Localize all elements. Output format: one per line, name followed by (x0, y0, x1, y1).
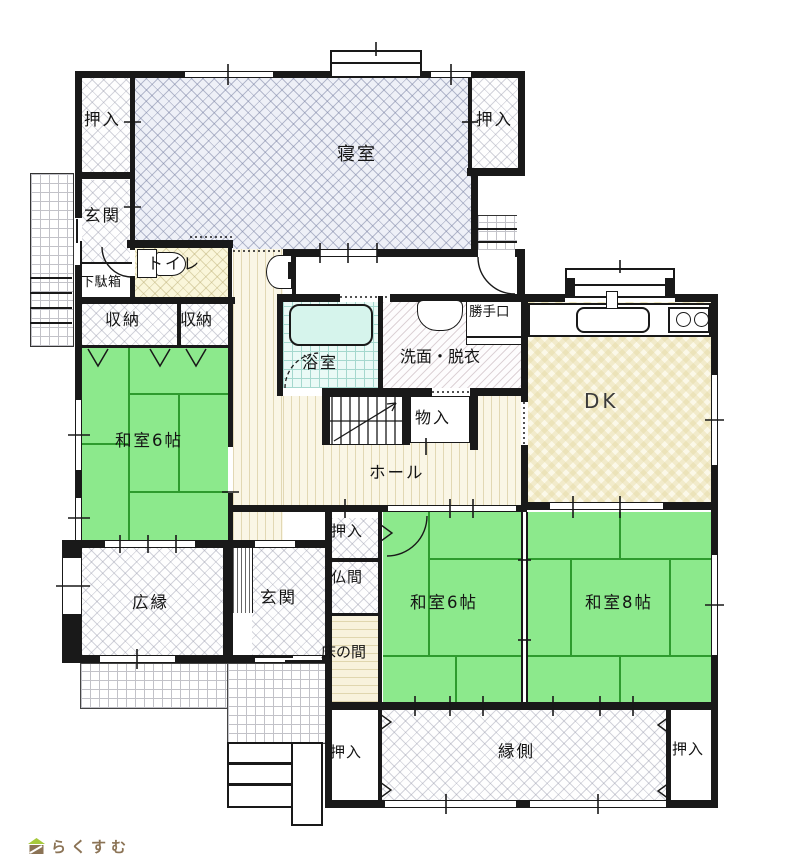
bay-window-side (565, 278, 575, 298)
label-tokonoma: 床の間 (321, 644, 366, 661)
wall (523, 502, 550, 510)
rakusumu-logo: らくすむ (28, 836, 131, 857)
window (75, 498, 82, 540)
porch-step-line (30, 292, 72, 294)
wall (228, 300, 233, 447)
porch-south-right (227, 663, 327, 744)
washbasin-column (288, 262, 296, 279)
partition-line (468, 78, 472, 168)
wall (325, 800, 385, 808)
shoji-door (105, 540, 195, 548)
label-washitsu6-west: 和室6帖 (115, 432, 183, 450)
entrance-step-3 (227, 784, 293, 808)
wall (273, 71, 330, 78)
tatami-line (619, 657, 621, 703)
wall (127, 240, 233, 248)
wall (228, 505, 388, 512)
tatami-line (428, 512, 430, 657)
window (711, 555, 718, 655)
porch-west (30, 173, 74, 347)
tatami-line (383, 655, 523, 657)
wall (521, 445, 528, 510)
wall (422, 71, 431, 78)
entrance-sliding-door (255, 656, 322, 662)
logo-text: らくすむ (51, 836, 131, 857)
wall (322, 388, 383, 396)
porch-step-line (30, 307, 72, 309)
label-katteguchi: 勝手口 (469, 305, 510, 320)
wall (223, 548, 233, 655)
porch-step-line (478, 241, 517, 243)
wall (471, 71, 525, 78)
wall (325, 512, 332, 710)
label-closet-nw: 押入 (84, 111, 121, 129)
label-closet-mid: 押入 (331, 523, 363, 540)
stove-burner-icon (676, 312, 691, 327)
label-bedroom: 寝室 (337, 145, 377, 165)
window (100, 655, 175, 663)
rear-passage-floor (283, 257, 517, 294)
wall (130, 78, 135, 245)
bay-window-dk (565, 268, 675, 298)
label-closet-ne: 押入 (476, 111, 513, 129)
label-dk: DK (584, 390, 619, 412)
wall (75, 304, 82, 400)
bay-window-line (332, 62, 420, 64)
wall (383, 388, 432, 396)
partition-line (332, 558, 378, 562)
wall (711, 295, 718, 375)
label-washroom: 洗面・脱衣 (400, 348, 480, 366)
wall (516, 505, 527, 512)
wall (377, 249, 478, 257)
sliding-door (550, 502, 663, 510)
window (185, 71, 273, 78)
label-engawa: 縁側 (498, 743, 535, 761)
entrance-sliding-door (75, 218, 82, 265)
window (75, 400, 82, 470)
bay-window-bedroom (330, 50, 422, 78)
label-entrance-south: 玄関 (260, 589, 297, 607)
wall (470, 388, 478, 450)
label-hiroen: 広縁 (132, 594, 169, 612)
label-shoe-cabinet: 下駄箱 (81, 276, 122, 290)
wall (518, 71, 525, 176)
wall (471, 168, 478, 257)
entrance-step-board (233, 548, 253, 613)
window (711, 375, 718, 465)
wall (663, 502, 718, 510)
partition-line (378, 512, 382, 702)
label-bathroom: 浴室 (302, 354, 338, 372)
sliding-door (432, 389, 472, 395)
stove-burner-icon (694, 312, 709, 327)
partition-line (332, 613, 378, 616)
label-storage2: 収納 (180, 311, 212, 329)
wall (130, 276, 135, 297)
bathtub-icon (289, 304, 373, 346)
fusuma-line (521, 512, 523, 705)
label-storage1: 収納 (105, 311, 141, 329)
tatami-line (527, 558, 711, 560)
porch-step-line (30, 322, 72, 324)
label-closet-sw: 押入 (330, 744, 362, 761)
partition-line (82, 345, 228, 348)
house-icon (28, 838, 45, 855)
pillar (516, 800, 530, 808)
floor-plan: 押入 寝室 押入 玄関 下駄箱 トイレ 収納 収納 和室6帖 浴室 洗面・脱衣 … (0, 0, 788, 867)
label-toilet: トイレ (147, 255, 201, 273)
katteguchi-step-line (466, 336, 521, 338)
partition-line (228, 245, 232, 300)
tatami-line (619, 512, 621, 560)
label-washitsu8: 和室8帖 (585, 594, 653, 612)
wall (467, 168, 525, 176)
sliding-door (388, 505, 518, 512)
partition-line (378, 296, 383, 394)
wall (711, 655, 718, 808)
door-opening (255, 541, 295, 547)
wall (515, 249, 525, 257)
kitchen-faucet-icon (606, 291, 618, 309)
wall (521, 294, 528, 402)
wall (283, 294, 340, 302)
window (62, 558, 82, 614)
bay-window-line (567, 284, 673, 286)
entrance-step-platform (291, 742, 323, 826)
wall (78, 172, 133, 179)
label-hall: ホール (369, 464, 425, 482)
label-monoiri: 物入 (415, 409, 451, 427)
staircase (322, 396, 403, 445)
wall (75, 297, 235, 304)
wall (75, 470, 82, 498)
wall (228, 493, 233, 540)
porch-step-line (478, 228, 517, 230)
partition-line (666, 710, 671, 800)
window (431, 71, 471, 78)
label-butsuma: 仏間 (331, 569, 363, 586)
wall (75, 71, 185, 78)
sliding-door (320, 249, 377, 257)
porch-step-line (30, 277, 72, 279)
tatami-line (669, 560, 671, 657)
wall (325, 702, 718, 710)
label-closet-se: 押入 (672, 741, 704, 758)
entrance-step-1 (227, 742, 293, 764)
partition-line (378, 710, 382, 800)
fusuma-line (526, 512, 528, 705)
bay-window-side (665, 278, 675, 298)
porch-south-left (80, 663, 229, 709)
tatami-line (455, 657, 457, 702)
label-washitsu6-south: 和室6帖 (410, 594, 478, 612)
room-bedroom-floor (135, 78, 471, 249)
tatami-line (570, 560, 572, 657)
wall (75, 78, 82, 218)
kitchen-sink-icon (576, 307, 650, 333)
label-entrance-north: 玄関 (84, 207, 121, 225)
partition-line (80, 262, 132, 264)
entrance-step-2 (227, 763, 293, 785)
wall (711, 465, 718, 505)
wall (277, 294, 283, 396)
wall (403, 396, 410, 445)
tatami-line (130, 491, 228, 493)
wall (711, 505, 718, 555)
wall (478, 388, 521, 396)
porch-back-door (478, 215, 517, 250)
wall (322, 396, 330, 445)
corridor-floor (233, 249, 283, 540)
wall (130, 245, 135, 250)
tatami-line (430, 558, 523, 560)
